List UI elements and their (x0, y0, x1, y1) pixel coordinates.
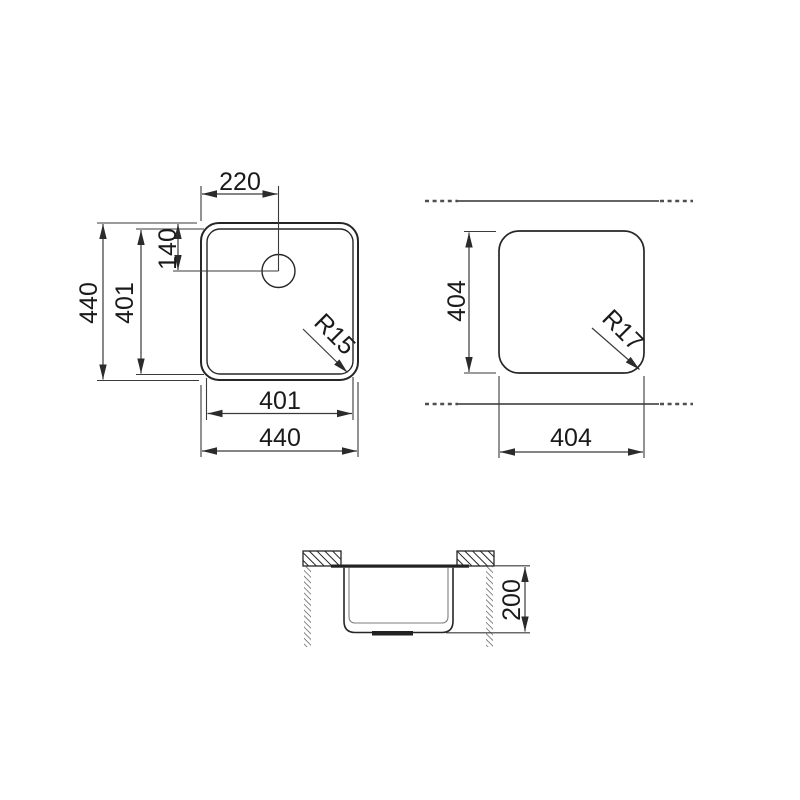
cabinet-wall-left (304, 566, 311, 647)
dim-label-cutout-height: 404 (443, 280, 471, 322)
cabinet-wall-right (486, 566, 493, 647)
dim-label-height-inner: 401 (111, 282, 139, 324)
dim-label-tap-offset-x: 220 (219, 168, 261, 196)
sink-bowl-edge (207, 229, 353, 374)
section-view: 200 (303, 551, 530, 647)
radius-label-r17: R17 (597, 304, 649, 356)
dim-label-cutout-width: 404 (550, 424, 592, 452)
cutout-view: 404 404 R17 (425, 201, 693, 458)
dim-label-width-overall: 440 (259, 424, 301, 452)
sink-dimension-drawing: 220 140 401 440 401 440 R15 (0, 0, 800, 800)
dim-label-width-inner: 401 (259, 387, 301, 415)
dim-label-tap-offset-y: 140 (154, 228, 182, 270)
sink-flange (331, 565, 469, 568)
dim-label-height-overall: 440 (75, 282, 103, 324)
technical-drawing-page: 220 140 401 440 401 440 R15 (0, 0, 800, 800)
bowl-inner-wall (349, 568, 448, 623)
worktop-section-left (303, 551, 341, 566)
sink-outer-edge (201, 223, 358, 380)
cutout-outline (499, 231, 644, 373)
worktop-section-right (457, 551, 494, 566)
drain-outlet (372, 631, 413, 636)
top-view: 220 140 401 440 401 440 R15 (75, 168, 361, 457)
dim-label-depth: 200 (498, 579, 526, 621)
